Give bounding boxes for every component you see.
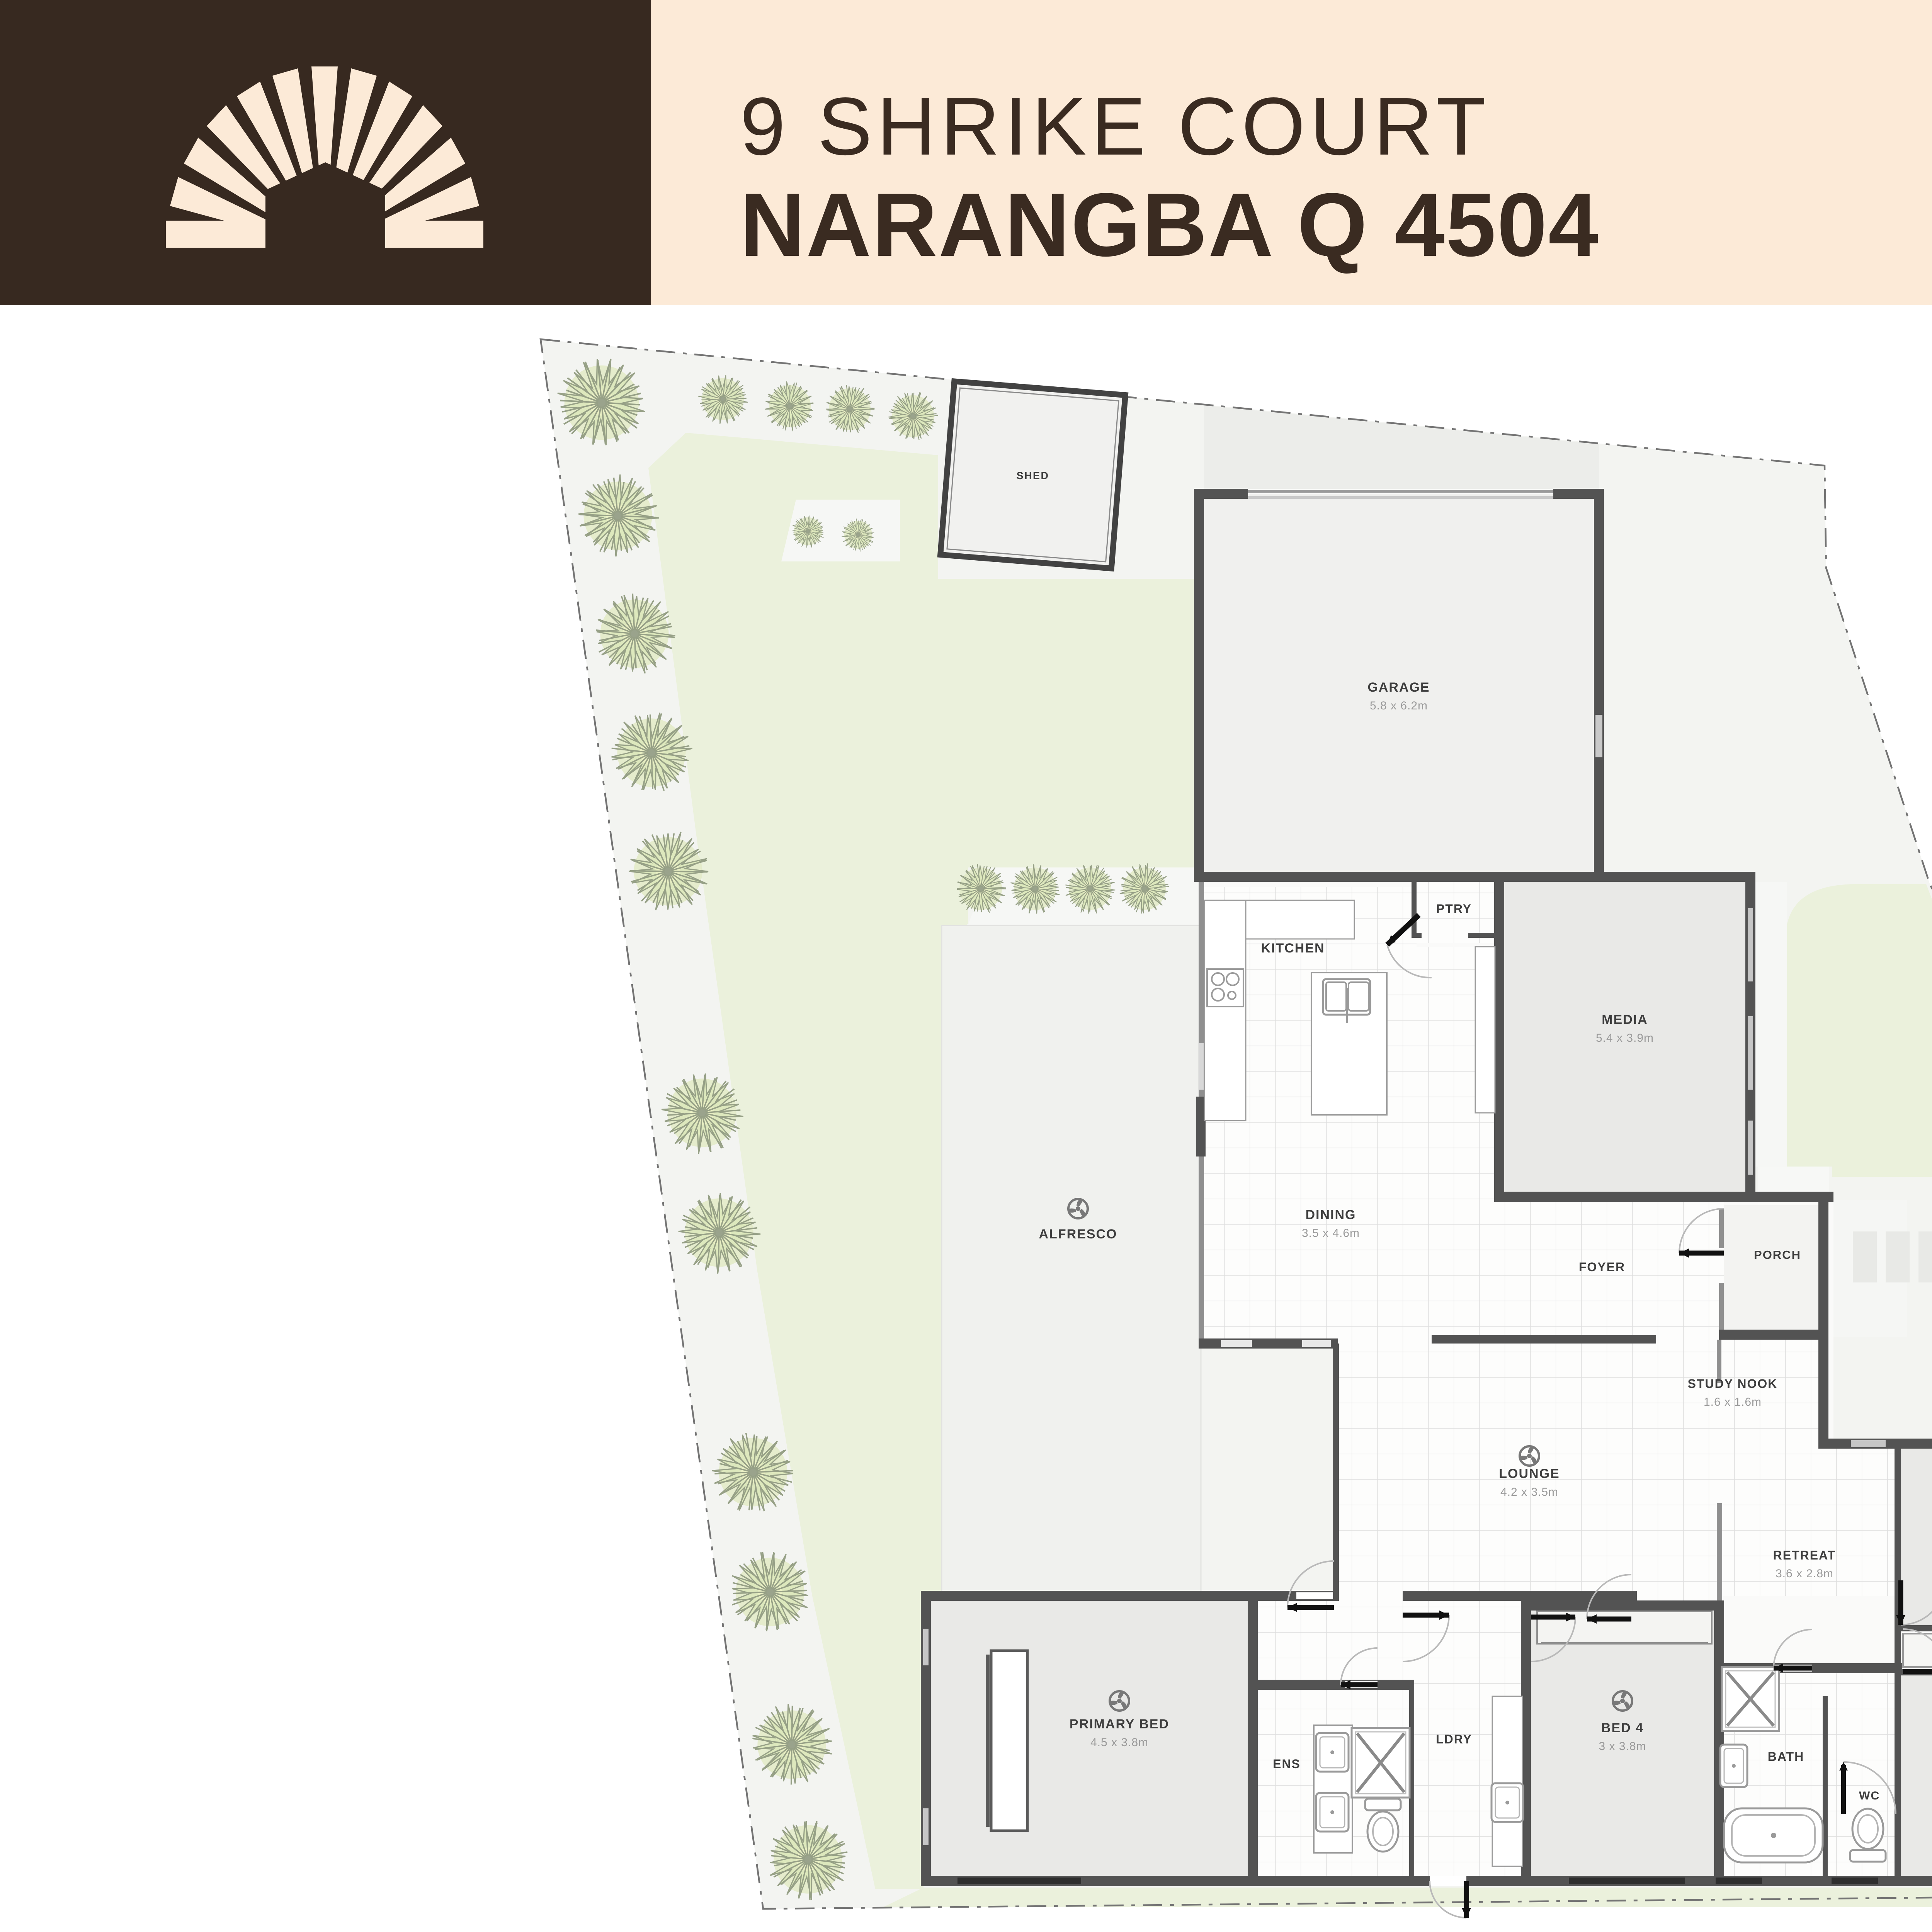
svg-text:4.2 x 3.5m: 4.2 x 3.5m	[1500, 1486, 1558, 1498]
svg-text:9 SHRIKE COURT: 9 SHRIKE COURT	[740, 80, 1491, 172]
svg-text:PRIMARY BED: PRIMARY BED	[1070, 1717, 1169, 1731]
svg-text:5.8 x 6.2m: 5.8 x 6.2m	[1370, 699, 1428, 712]
svg-text:STUDY NOOK: STUDY NOOK	[1688, 1377, 1778, 1391]
svg-text:PTRY: PTRY	[1436, 902, 1472, 916]
svg-text:5.4 x 3.9m: 5.4 x 3.9m	[1596, 1032, 1654, 1044]
svg-text:RETREAT: RETREAT	[1773, 1548, 1836, 1562]
svg-text:3.5 x 4.6m: 3.5 x 4.6m	[1302, 1227, 1360, 1240]
svg-text:3.6 x 2.8m: 3.6 x 2.8m	[1776, 1567, 1833, 1580]
svg-text:NARANGBA Q 4504: NARANGBA Q 4504	[740, 175, 1599, 275]
svg-text:1.6 x 1.6m: 1.6 x 1.6m	[1704, 1396, 1762, 1408]
svg-text:MEDIA: MEDIA	[1602, 1012, 1648, 1027]
svg-text:FOYER: FOYER	[1579, 1260, 1625, 1274]
svg-text:LDRY: LDRY	[1436, 1732, 1472, 1746]
svg-text:SHED: SHED	[1016, 470, 1049, 481]
svg-text:BATH: BATH	[1768, 1750, 1804, 1764]
svg-text:ALFRESCO: ALFRESCO	[1039, 1227, 1117, 1242]
svg-text:LOUNGE: LOUNGE	[1499, 1466, 1560, 1481]
svg-text:DINING: DINING	[1306, 1207, 1356, 1222]
svg-text:ENS: ENS	[1273, 1757, 1301, 1771]
svg-text:WC: WC	[1859, 1789, 1880, 1802]
svg-text:PORCH: PORCH	[1754, 1248, 1801, 1262]
svg-text:GARAGE: GARAGE	[1367, 680, 1430, 695]
svg-text:BED 4: BED 4	[1601, 1721, 1644, 1735]
svg-text:KITCHEN: KITCHEN	[1261, 941, 1325, 956]
svg-text:4.5 x 3.8m: 4.5 x 3.8m	[1090, 1736, 1148, 1749]
svg-text:3 x 3.8m: 3 x 3.8m	[1599, 1740, 1646, 1753]
